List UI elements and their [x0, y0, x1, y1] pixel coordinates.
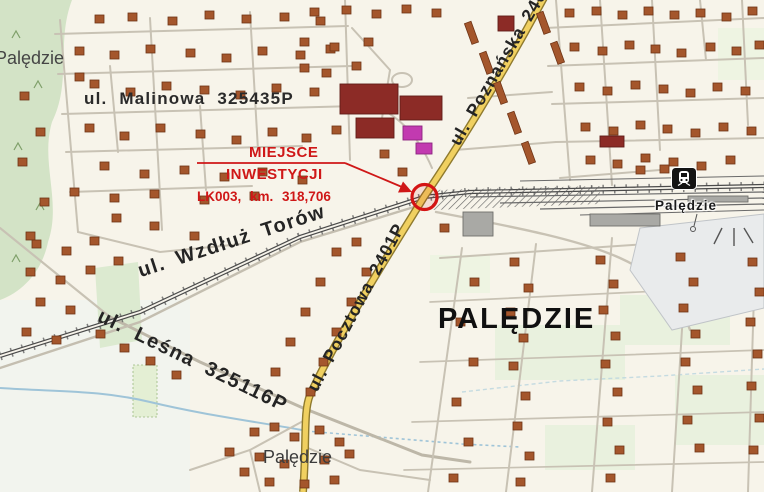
annotation-detail: LK003, km. 318,706 — [197, 190, 331, 204]
station-label-paledzie: Palędzie — [655, 199, 717, 213]
place-label-top-left: Palędzie — [0, 49, 64, 68]
town-label-paledzie: PALĘDZIE — [438, 304, 595, 334]
village-label-paledzie: Palędzie — [263, 448, 332, 467]
annotation-title-line2: INWESTYCJI — [226, 167, 323, 183]
map-canvas: Palędzie ul. Malinowa 325435P ul. Poznań… — [0, 0, 764, 492]
annotation-title-line1: MIEJSCE — [249, 145, 318, 161]
railway-station-icon — [671, 167, 697, 190]
street-label-malinowa: ul. Malinowa 325435P — [84, 90, 294, 108]
